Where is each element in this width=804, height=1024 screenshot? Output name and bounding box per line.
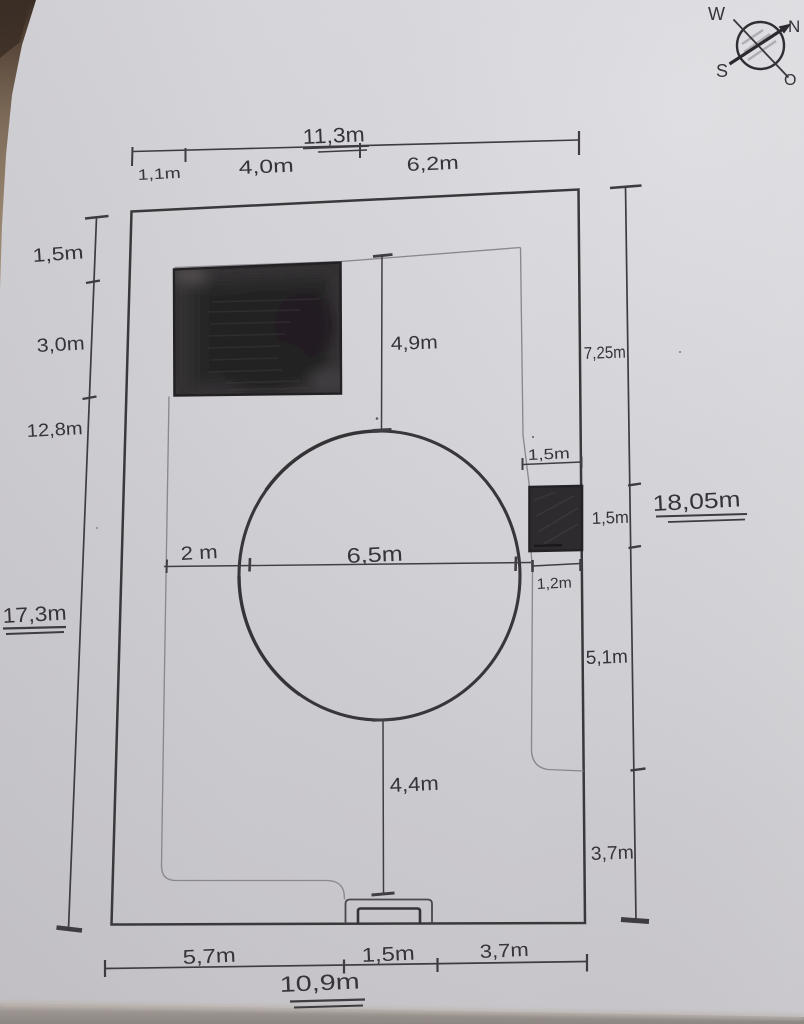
svg-text:7,25m: 7,25m: [583, 343, 626, 363]
svg-text:W: W: [708, 4, 725, 24]
svg-text:6,5m: 6,5m: [346, 543, 403, 568]
svg-text:2 m: 2 m: [180, 542, 218, 565]
svg-text:1,5m: 1,5m: [527, 445, 570, 464]
svg-text:1,5m: 1,5m: [591, 508, 629, 528]
svg-text:1,5m: 1,5m: [32, 242, 84, 267]
svg-text:1,2m: 1,2m: [536, 574, 572, 593]
svg-text:N: N: [788, 17, 800, 36]
svg-text:S: S: [716, 61, 728, 81]
svg-text:4,4m: 4,4m: [389, 773, 439, 797]
svg-text:3,7m: 3,7m: [590, 843, 634, 865]
svg-text:3,0m: 3,0m: [36, 334, 85, 357]
svg-text:3,7m: 3,7m: [479, 940, 529, 963]
svg-text:1,1m: 1,1m: [137, 165, 181, 184]
svg-text:17,3m: 17,3m: [2, 602, 67, 628]
svg-text:18,05m: 18,05m: [652, 486, 741, 516]
svg-text:1,5m: 1,5m: [361, 943, 415, 967]
svg-text:5,1m: 5,1m: [585, 647, 628, 669]
svg-text:4,0m: 4,0m: [238, 156, 294, 179]
svg-text:5,7m: 5,7m: [182, 945, 236, 969]
svg-text:O: O: [784, 72, 796, 89]
svg-text:6,2m: 6,2m: [406, 153, 459, 176]
svg-text:12,8m: 12,8m: [26, 418, 83, 441]
svg-text:10,9m: 10,9m: [279, 969, 360, 997]
svg-text:11,3m: 11,3m: [302, 123, 365, 149]
svg-text:4,9m: 4,9m: [390, 332, 438, 355]
